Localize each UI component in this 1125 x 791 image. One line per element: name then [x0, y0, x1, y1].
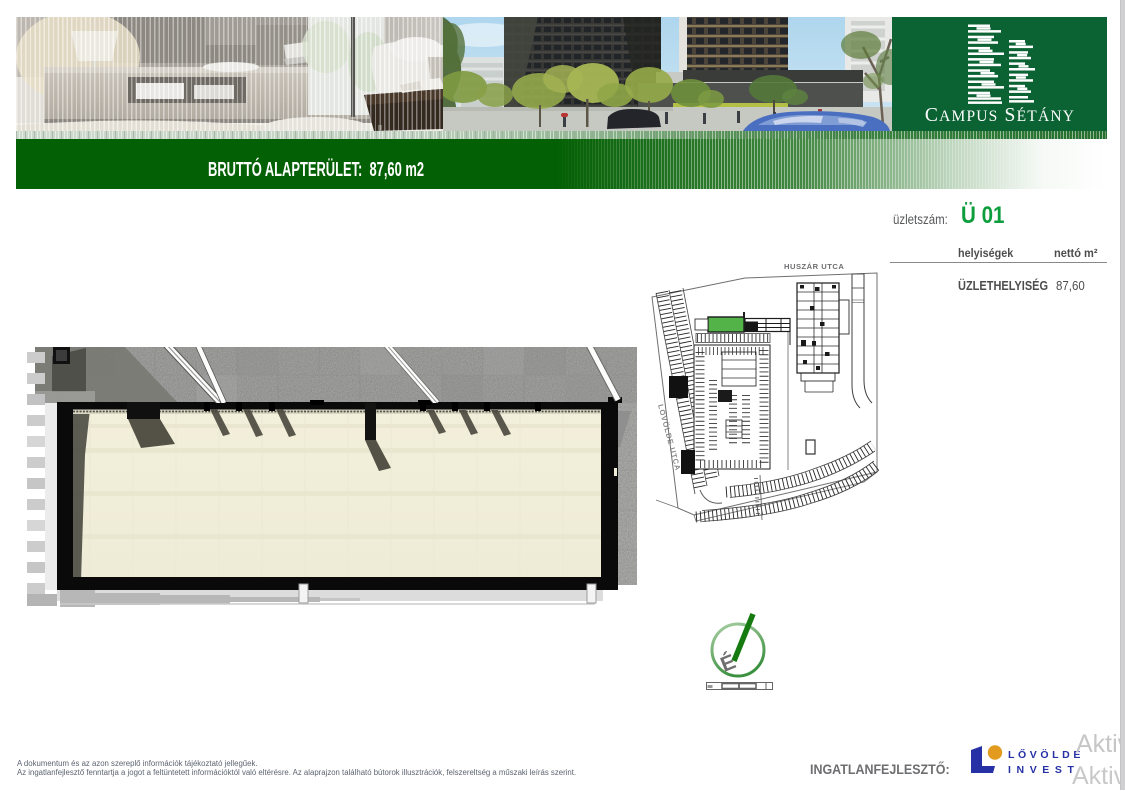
svg-text:HUSZÁR UTCA: HUSZÁR UTCA	[784, 262, 844, 271]
svg-text:LŐVÖLDE: LŐVÖLDE	[1008, 748, 1084, 761]
svg-text:INVEST: INVEST	[1008, 764, 1080, 776]
svg-text:CAMPUS SÉTÁNY: CAMPUS SÉTÁNY	[925, 105, 1075, 126]
